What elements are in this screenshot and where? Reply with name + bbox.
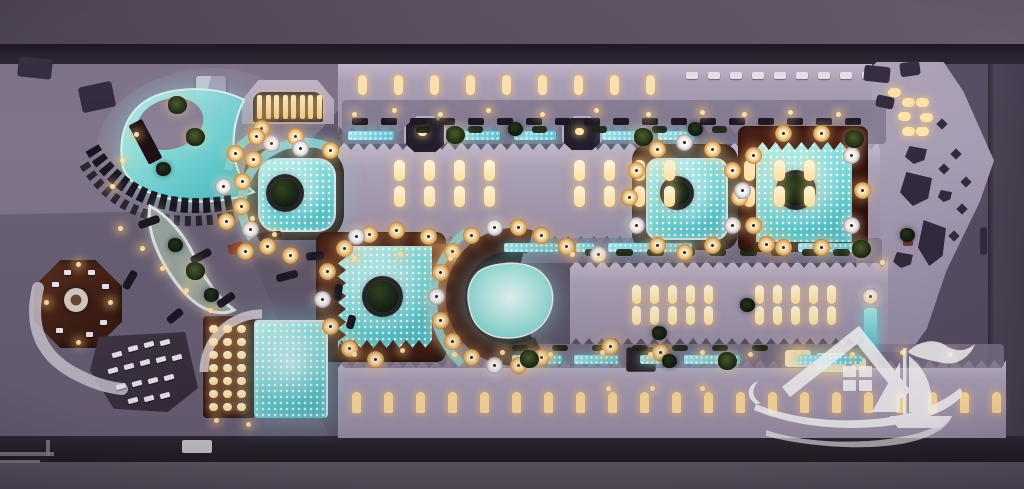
path-light (646, 112, 651, 117)
bench (345, 314, 356, 330)
umbrella (367, 351, 384, 368)
bar-table (86, 332, 93, 337)
path-light (352, 112, 357, 117)
deck-window (209, 390, 218, 398)
roof-window (574, 186, 585, 207)
roof-window (686, 306, 695, 325)
palm-tree (446, 126, 465, 144)
detail-layer (0, 0, 1024, 489)
umbrella (237, 243, 254, 260)
path-light (134, 132, 139, 137)
path-light (214, 418, 219, 423)
bar-table (88, 270, 95, 275)
dining-table (148, 377, 159, 384)
plaza-planter (918, 220, 946, 266)
umbrella (248, 128, 265, 145)
umbrella (314, 291, 331, 308)
street-sign (182, 440, 212, 453)
plaza-planter (900, 172, 932, 206)
hedge (468, 126, 483, 133)
arched-window (704, 392, 713, 413)
roof-unit (78, 81, 117, 114)
roof-window (804, 186, 815, 207)
arched-window (640, 392, 649, 413)
deck-window (223, 351, 232, 359)
cabana-daybed (300, 95, 305, 119)
deck-window (237, 390, 246, 398)
hedge (532, 126, 547, 133)
cabana-daybed (317, 95, 322, 119)
path-light (44, 300, 49, 305)
path-light (900, 350, 905, 355)
path-light (836, 112, 841, 117)
bar-table (100, 320, 107, 325)
roof-window (791, 285, 800, 304)
roof-window (484, 160, 495, 181)
plaza-planter (938, 190, 952, 202)
roof-window (809, 285, 818, 304)
arched-window (416, 392, 425, 413)
plaza-planter (893, 252, 913, 268)
skylight (610, 75, 619, 95)
cabana-daybed (308, 95, 313, 119)
path-light (400, 348, 405, 353)
plaza-table (956, 203, 967, 214)
path-light (208, 308, 213, 313)
plaza-skylight (916, 98, 929, 107)
sun-lounger (774, 72, 786, 79)
plaza-bench (980, 227, 987, 255)
roof-window (755, 306, 764, 325)
sun-lounger (381, 118, 397, 125)
roof-window (650, 306, 659, 325)
sun-lounger (845, 118, 861, 125)
roof-unit (863, 65, 891, 84)
umbrella (724, 217, 741, 234)
hedge (416, 126, 431, 133)
path-light (140, 246, 145, 251)
hedge (652, 126, 667, 133)
deck-window (237, 325, 246, 333)
roof-window (604, 160, 615, 181)
umbrella (245, 151, 262, 168)
sun-lounger (555, 118, 571, 125)
sun-lounger (410, 118, 426, 125)
bench (333, 283, 344, 300)
dining-table (132, 380, 143, 387)
umbrella (704, 141, 721, 158)
arched-window (608, 392, 617, 413)
pipe (46, 440, 50, 456)
umbrella (734, 182, 751, 199)
arched-window (384, 392, 393, 413)
umbrella (758, 236, 775, 253)
roof-window (773, 285, 782, 304)
sun-lounger (700, 118, 716, 125)
roof-window (650, 285, 659, 304)
plaza-table (960, 176, 971, 187)
deck-window (237, 338, 246, 346)
skylight (430, 75, 439, 95)
roof-window (668, 306, 677, 325)
umbrella (218, 213, 235, 230)
roof-unit (875, 94, 895, 109)
roof-window (424, 160, 435, 181)
arched-window (960, 392, 969, 413)
umbrella (775, 125, 792, 142)
hedge (740, 249, 757, 256)
umbrella (432, 312, 449, 329)
plaza-skylight (902, 98, 915, 107)
sun-lounger (730, 72, 742, 79)
skylight (466, 75, 475, 95)
cabana-daybed (257, 95, 262, 119)
cabana-daybed (274, 95, 279, 119)
umbrella (463, 349, 480, 366)
umbrella (676, 134, 693, 151)
umbrella (388, 222, 405, 239)
palm-tree (204, 288, 219, 302)
sun-lounger (671, 118, 687, 125)
path-light (392, 108, 397, 113)
hedge (616, 249, 633, 256)
roof-window (668, 285, 677, 304)
cabana-daybed (266, 95, 271, 119)
umbrella (234, 173, 251, 190)
palm-tree (688, 122, 703, 136)
bench (137, 214, 160, 229)
path-light (606, 386, 611, 391)
path-light (600, 350, 605, 355)
umbrella (843, 147, 860, 164)
sun-lounger (584, 118, 600, 125)
plaza-skylight (920, 113, 933, 122)
roof-window (774, 186, 785, 207)
sun-lounger (708, 72, 720, 79)
umbrella (420, 228, 437, 245)
deck-window (237, 403, 246, 411)
sun-lounger (840, 72, 852, 79)
palm-tree (508, 122, 523, 136)
path-light (160, 266, 165, 271)
arched-window (928, 392, 937, 413)
path-light (948, 352, 953, 357)
arched-window (544, 392, 553, 413)
roof-window (704, 306, 713, 325)
sun-lounger (818, 72, 830, 79)
path-light (250, 216, 255, 221)
plaza-skylight (916, 127, 929, 136)
sun-lounger (613, 118, 629, 125)
arched-window (448, 392, 457, 413)
umbrella (432, 264, 449, 281)
roof-window (394, 160, 405, 181)
umbrella (227, 145, 244, 162)
palm-tree (168, 238, 183, 252)
deck-window (223, 325, 232, 333)
sun-lounger (526, 118, 542, 125)
path-light (110, 184, 115, 189)
bar-table (52, 282, 59, 287)
path-light (246, 422, 251, 427)
palm-tree (634, 128, 653, 146)
dining-table (128, 397, 139, 404)
umbrella (724, 162, 741, 179)
water-channel (504, 243, 558, 252)
deck-window (209, 338, 218, 346)
dining-table (140, 359, 151, 366)
plaza-table (948, 230, 959, 241)
sun-lounger (816, 118, 832, 125)
skylight (646, 75, 655, 95)
plaza-skylight (888, 88, 901, 97)
path-light (700, 350, 705, 355)
roof-window (827, 285, 836, 304)
roof-window (804, 160, 815, 181)
path-light (700, 386, 705, 391)
roof-window (791, 306, 800, 325)
umbrella (843, 217, 860, 234)
roof-window (632, 306, 641, 325)
dining-table (112, 351, 123, 358)
aerial-resort-photo (0, 0, 1024, 489)
path-light (700, 110, 705, 115)
deck-window (209, 325, 218, 333)
arched-window (992, 392, 1001, 413)
dining-table (116, 383, 127, 390)
path-light (650, 386, 655, 391)
arched-window (672, 392, 681, 413)
palm-tree (156, 162, 171, 176)
pavilion-lamp (575, 128, 584, 135)
skylight (502, 75, 511, 95)
deck-window (237, 364, 246, 372)
dining-table (144, 341, 155, 348)
path-light (108, 300, 113, 305)
umbrella (533, 227, 550, 244)
plaza-skylight (898, 112, 911, 121)
umbrella (348, 228, 365, 245)
umbrella (215, 178, 232, 195)
bar-table (64, 270, 71, 275)
arched-window (576, 392, 585, 413)
dining-table (164, 374, 175, 381)
plaza-table (950, 148, 961, 159)
bench (166, 307, 185, 325)
path-light (594, 108, 599, 113)
path-light (880, 260, 885, 265)
path-light (548, 352, 553, 357)
sun-lounger (758, 118, 774, 125)
umbrella (813, 239, 830, 256)
path-light (118, 226, 123, 231)
path-light (500, 350, 505, 355)
path-light (76, 262, 81, 267)
skylight (394, 75, 403, 95)
hedge (672, 345, 688, 351)
path-light (486, 108, 491, 113)
path-light (540, 112, 545, 117)
arched-window (896, 392, 905, 413)
umbrella (322, 142, 339, 159)
palm-tree (852, 240, 871, 258)
umbrella (322, 318, 339, 335)
path-light (398, 252, 403, 257)
bench (306, 251, 325, 261)
path-light (352, 256, 357, 261)
umbrella (704, 237, 721, 254)
arched-window (480, 392, 489, 413)
dining-table (160, 392, 171, 399)
cabana-daybed (283, 95, 288, 119)
path-light (184, 288, 189, 293)
umbrella (628, 217, 645, 234)
hedge (592, 126, 607, 133)
path-light (452, 352, 457, 357)
path-light (76, 340, 81, 345)
deck-window (223, 364, 232, 372)
umbrella (259, 238, 276, 255)
hedge (833, 249, 850, 256)
path-light (120, 158, 125, 163)
deck-window (237, 351, 246, 359)
bench (275, 269, 298, 282)
deck-window (223, 403, 232, 411)
palm-tree (662, 354, 677, 368)
deck-window (209, 403, 218, 411)
palm-tree (186, 128, 205, 146)
palm-tree (186, 262, 205, 280)
roof-window (774, 160, 785, 181)
dining-table (128, 345, 139, 352)
roof-window (454, 160, 465, 181)
water-channel (574, 355, 618, 364)
arched-window (352, 392, 361, 413)
deck-window (209, 364, 218, 372)
path-light (448, 256, 453, 261)
sun-lounger (352, 118, 368, 125)
hedge (752, 345, 768, 351)
umbrella (813, 125, 830, 142)
umbrella (676, 244, 693, 261)
hedge (632, 345, 648, 351)
umbrella (745, 217, 762, 234)
roof-window (704, 285, 713, 304)
dining-table (124, 363, 135, 370)
roof-window (574, 160, 585, 181)
arched-window (800, 392, 809, 413)
path-light (742, 112, 747, 117)
path-light (788, 110, 793, 115)
umbrella (486, 219, 503, 236)
arched-window (832, 392, 841, 413)
palm-tree (740, 298, 755, 312)
dining-table (108, 367, 119, 374)
arched-window (736, 392, 745, 413)
dining-table (156, 356, 167, 363)
sun-lounger (752, 72, 764, 79)
umbrella (628, 162, 645, 179)
umbrella (649, 141, 666, 158)
umbrella (292, 140, 309, 157)
skylight (358, 75, 367, 95)
bar-table (102, 284, 109, 289)
palm-tree (168, 96, 187, 114)
hedge (712, 126, 727, 133)
deck-window (223, 338, 232, 346)
umbrella (444, 333, 461, 350)
plaza-table (938, 163, 949, 174)
deck-window (209, 377, 218, 385)
hedge (552, 345, 568, 351)
roof-window (809, 306, 818, 325)
dining-table (172, 354, 183, 361)
sun-lounger (686, 72, 698, 79)
umbrella (486, 357, 503, 374)
umbrella (621, 189, 638, 206)
roof-window (454, 186, 465, 207)
dining-table (160, 339, 171, 346)
hedge (712, 345, 728, 351)
umbrella (428, 288, 445, 305)
path-light (748, 352, 753, 357)
palm-tree (845, 130, 864, 148)
umbrella (854, 182, 871, 199)
umbrella (233, 198, 250, 215)
roof-window (664, 186, 675, 207)
roof-window (773, 306, 782, 325)
arched-window (512, 392, 521, 413)
path-light (598, 256, 603, 261)
bench (122, 269, 139, 290)
sun-lounger (796, 72, 808, 79)
roof-window (664, 160, 675, 181)
pipe (0, 460, 40, 463)
plaza-table (936, 118, 947, 129)
deck-window (223, 390, 232, 398)
palm-tree (652, 326, 667, 340)
dining-table (144, 395, 155, 402)
path-light (352, 352, 357, 357)
path-light (438, 112, 443, 117)
deck-window (223, 377, 232, 385)
roof-window (632, 285, 641, 304)
skylight (538, 75, 547, 95)
umbrella (463, 227, 480, 244)
umbrella (282, 247, 299, 264)
palm-tree (520, 350, 539, 368)
umbrella (649, 237, 666, 254)
sun-lounger (787, 118, 803, 125)
umbrella (242, 221, 259, 238)
palm-tree (718, 352, 737, 370)
roof-unit (17, 56, 53, 79)
roof-window (755, 285, 764, 304)
roof-window (827, 306, 836, 325)
sun-lounger (642, 118, 658, 125)
umbrella (319, 263, 336, 280)
water-channel (348, 131, 394, 140)
deck-window (209, 351, 218, 359)
roof-unit (899, 61, 921, 78)
bar-table (56, 328, 63, 333)
umbrella (510, 219, 527, 236)
palm-tree (900, 228, 915, 242)
path-light (570, 252, 575, 257)
deck-window (237, 377, 246, 385)
roof-window (424, 186, 435, 207)
plaza-planter (905, 146, 927, 164)
